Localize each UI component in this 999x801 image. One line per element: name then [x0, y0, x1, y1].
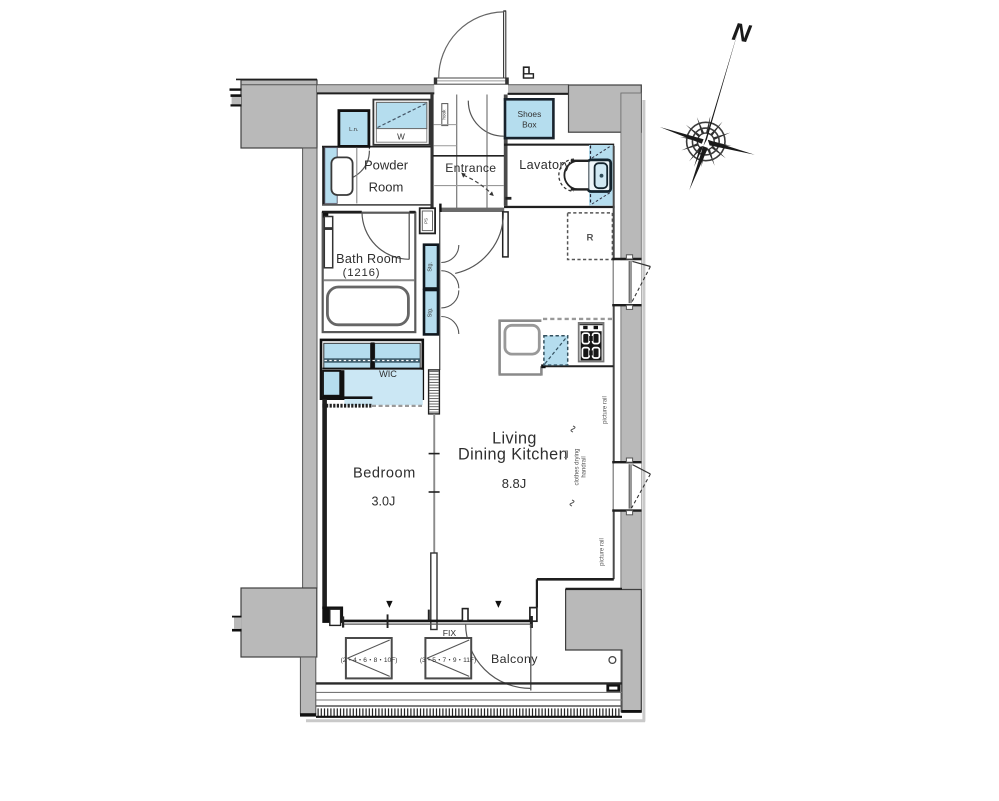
svg-text:Stg.: Stg. [427, 262, 433, 272]
svg-text:R: R [587, 233, 594, 244]
svg-text:8.8J: 8.8J [502, 476, 527, 491]
svg-text:picture rail: picture rail [603, 396, 609, 424]
svg-text:Lavatory: Lavatory [519, 158, 571, 172]
svg-text:Bedroom: Bedroom [353, 465, 416, 481]
svg-text:(2・4・6・8・10F): (2・4・6・8・10F) [341, 657, 398, 664]
svg-text:Powder: Powder [364, 158, 409, 173]
svg-text:hook: hook [441, 109, 446, 120]
svg-text:Dining Kitchen: Dining Kitchen [458, 445, 568, 463]
svg-text:Balcony: Balcony [491, 652, 538, 666]
svg-text:N: N [730, 18, 754, 49]
svg-text:WIC: WIC [379, 369, 397, 379]
svg-text:Shoes: Shoes [518, 109, 542, 119]
svg-text:PS: PS [423, 218, 428, 224]
svg-text:clothes drying: clothes drying [575, 448, 581, 485]
svg-text:FIX: FIX [443, 628, 457, 638]
svg-text:Bath Room: Bath Room [336, 252, 402, 266]
svg-text:Box: Box [522, 120, 537, 130]
svg-text:Room: Room [369, 179, 404, 194]
svg-text:L.n.: L.n. [349, 127, 359, 133]
svg-text:(3・5・7・9・11F): (3・5・7・9・11F) [420, 657, 476, 664]
svg-text:Entrance: Entrance [445, 161, 496, 175]
svg-text:Stg.: Stg. [427, 308, 433, 318]
svg-text:(1216): (1216) [343, 267, 381, 279]
svg-text:3.0J: 3.0J [371, 495, 395, 509]
svg-text:handrail: handrail [581, 456, 587, 477]
svg-text:picture rail: picture rail [600, 538, 606, 566]
svg-text:W: W [397, 133, 405, 142]
